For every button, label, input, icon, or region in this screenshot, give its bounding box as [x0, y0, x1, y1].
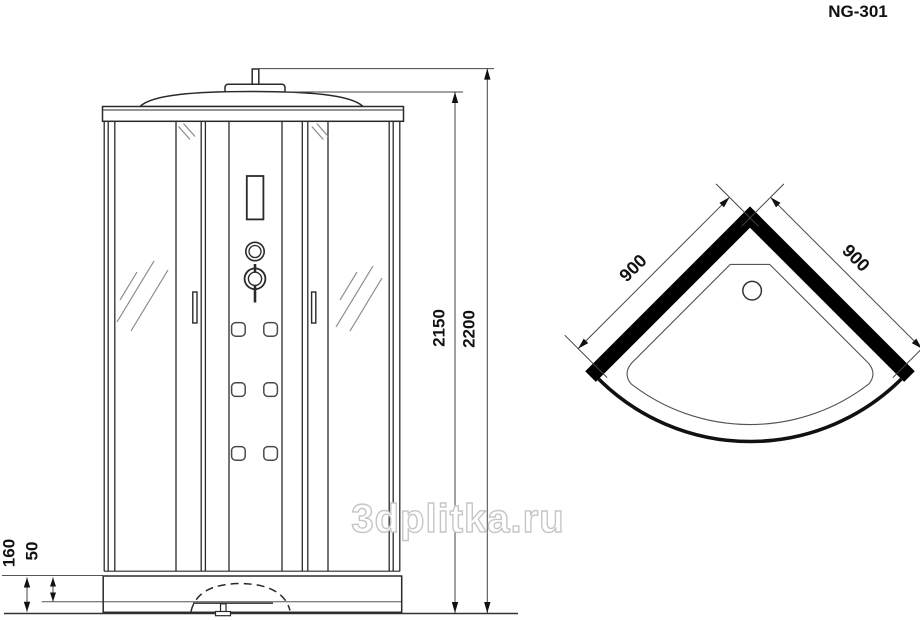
model-number-label: NG-301 [815, 3, 901, 20]
tray-front-edge [599, 228, 902, 531]
left-wall [585, 207, 760, 382]
base-dim-arrows [24, 578, 56, 612]
tray-base [103, 571, 402, 616]
dim-total-height-label: 2200 [461, 310, 478, 348]
glass-reflections [117, 124, 382, 332]
top-view [557, 150, 920, 536]
right-wall [739, 207, 914, 382]
roof-dome [140, 92, 363, 107]
top-frame-band [103, 107, 404, 122]
adjustable-foot [216, 604, 231, 616]
base-dimensions [27, 578, 53, 612]
roof-assembly [103, 69, 404, 121]
control-panel-display [247, 176, 264, 219]
left-door-handle [193, 292, 197, 323]
dim-tray-rim-label: 50 [24, 542, 41, 561]
control-column [232, 176, 278, 460]
right-door-handle [312, 292, 316, 323]
vent-pipe [252, 69, 259, 85]
tray-inner-rim [621, 245, 879, 503]
site-watermark: 3dplitka.ru [351, 499, 564, 539]
technical-drawing-page: NG-301 2150 2200 160 50 900 900 3dplitka… [0, 0, 920, 620]
hydromassage-jets [232, 323, 278, 461]
drain-hole [739, 277, 765, 303]
apron-arch-dashed [191, 584, 290, 612]
dim-cabin-height-label: 2150 [431, 309, 448, 347]
dim-base-height-label: 160 [1, 539, 18, 567]
